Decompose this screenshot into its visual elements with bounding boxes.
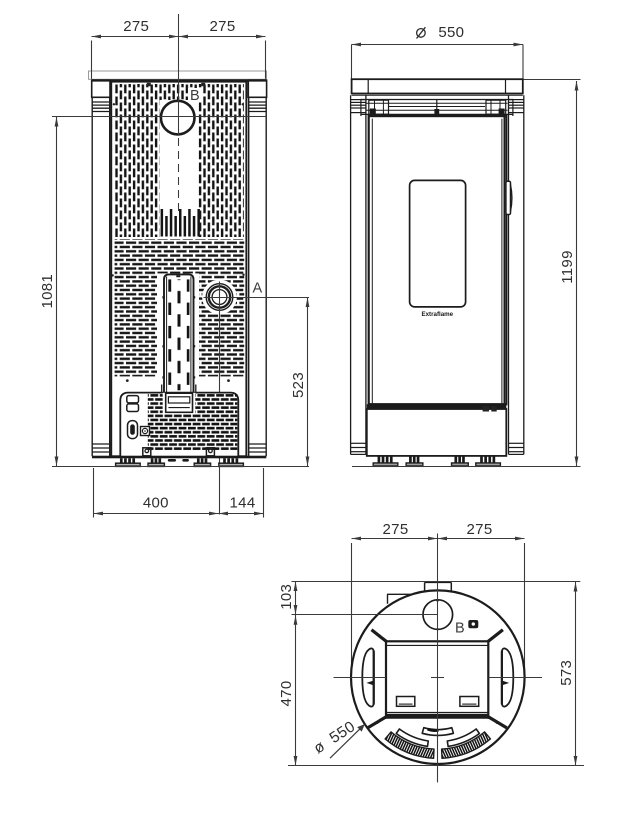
svg-text:275: 275 (383, 521, 409, 538)
svg-text:573: 573 (558, 660, 575, 686)
svg-text:275: 275 (210, 18, 236, 35)
svg-text:470: 470 (278, 681, 295, 707)
svg-text:1199: 1199 (559, 250, 576, 283)
svg-text:275: 275 (123, 18, 149, 35)
svg-text:275: 275 (467, 521, 493, 538)
svg-text:1081: 1081 (39, 274, 56, 309)
svg-text:A: A (253, 281, 263, 297)
svg-text:Extraflame: Extraflame (421, 311, 453, 318)
svg-text:144: 144 (230, 495, 256, 512)
svg-text:550: 550 (438, 24, 464, 41)
svg-text:B: B (455, 621, 465, 637)
svg-text:523: 523 (290, 372, 307, 398)
svg-text:400: 400 (143, 495, 169, 512)
svg-text:103: 103 (278, 584, 295, 610)
svg-text:B: B (190, 88, 200, 104)
